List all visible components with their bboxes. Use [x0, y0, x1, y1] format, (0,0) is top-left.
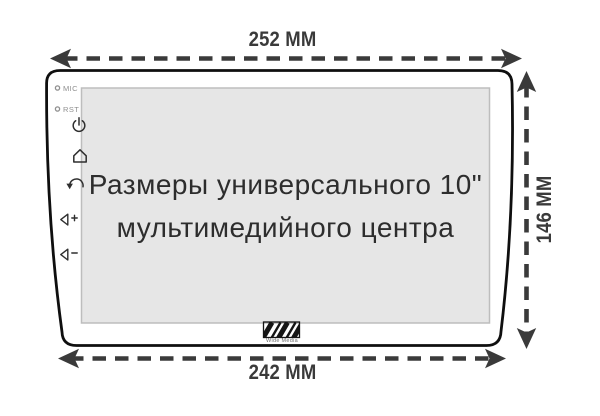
height-label: 146 MM [534, 161, 556, 257]
mic-label: MIC [63, 84, 78, 93]
bottom-width-label: 242 MM [183, 361, 383, 385]
top-width-label: 252 MM [183, 28, 383, 52]
screen-caption-line2: мультимедийного центра [70, 206, 501, 249]
rst-label: RST [63, 105, 79, 114]
diagram-canvas: 252 MM 242 MM 146 MM Размеры универсальн… [0, 0, 600, 416]
brand-label: Wide Media [251, 338, 313, 344]
screen-caption: Размеры универсального 10" мультимедийно… [70, 163, 501, 249]
screen-caption-line1: Размеры универсального 10" [70, 163, 501, 206]
